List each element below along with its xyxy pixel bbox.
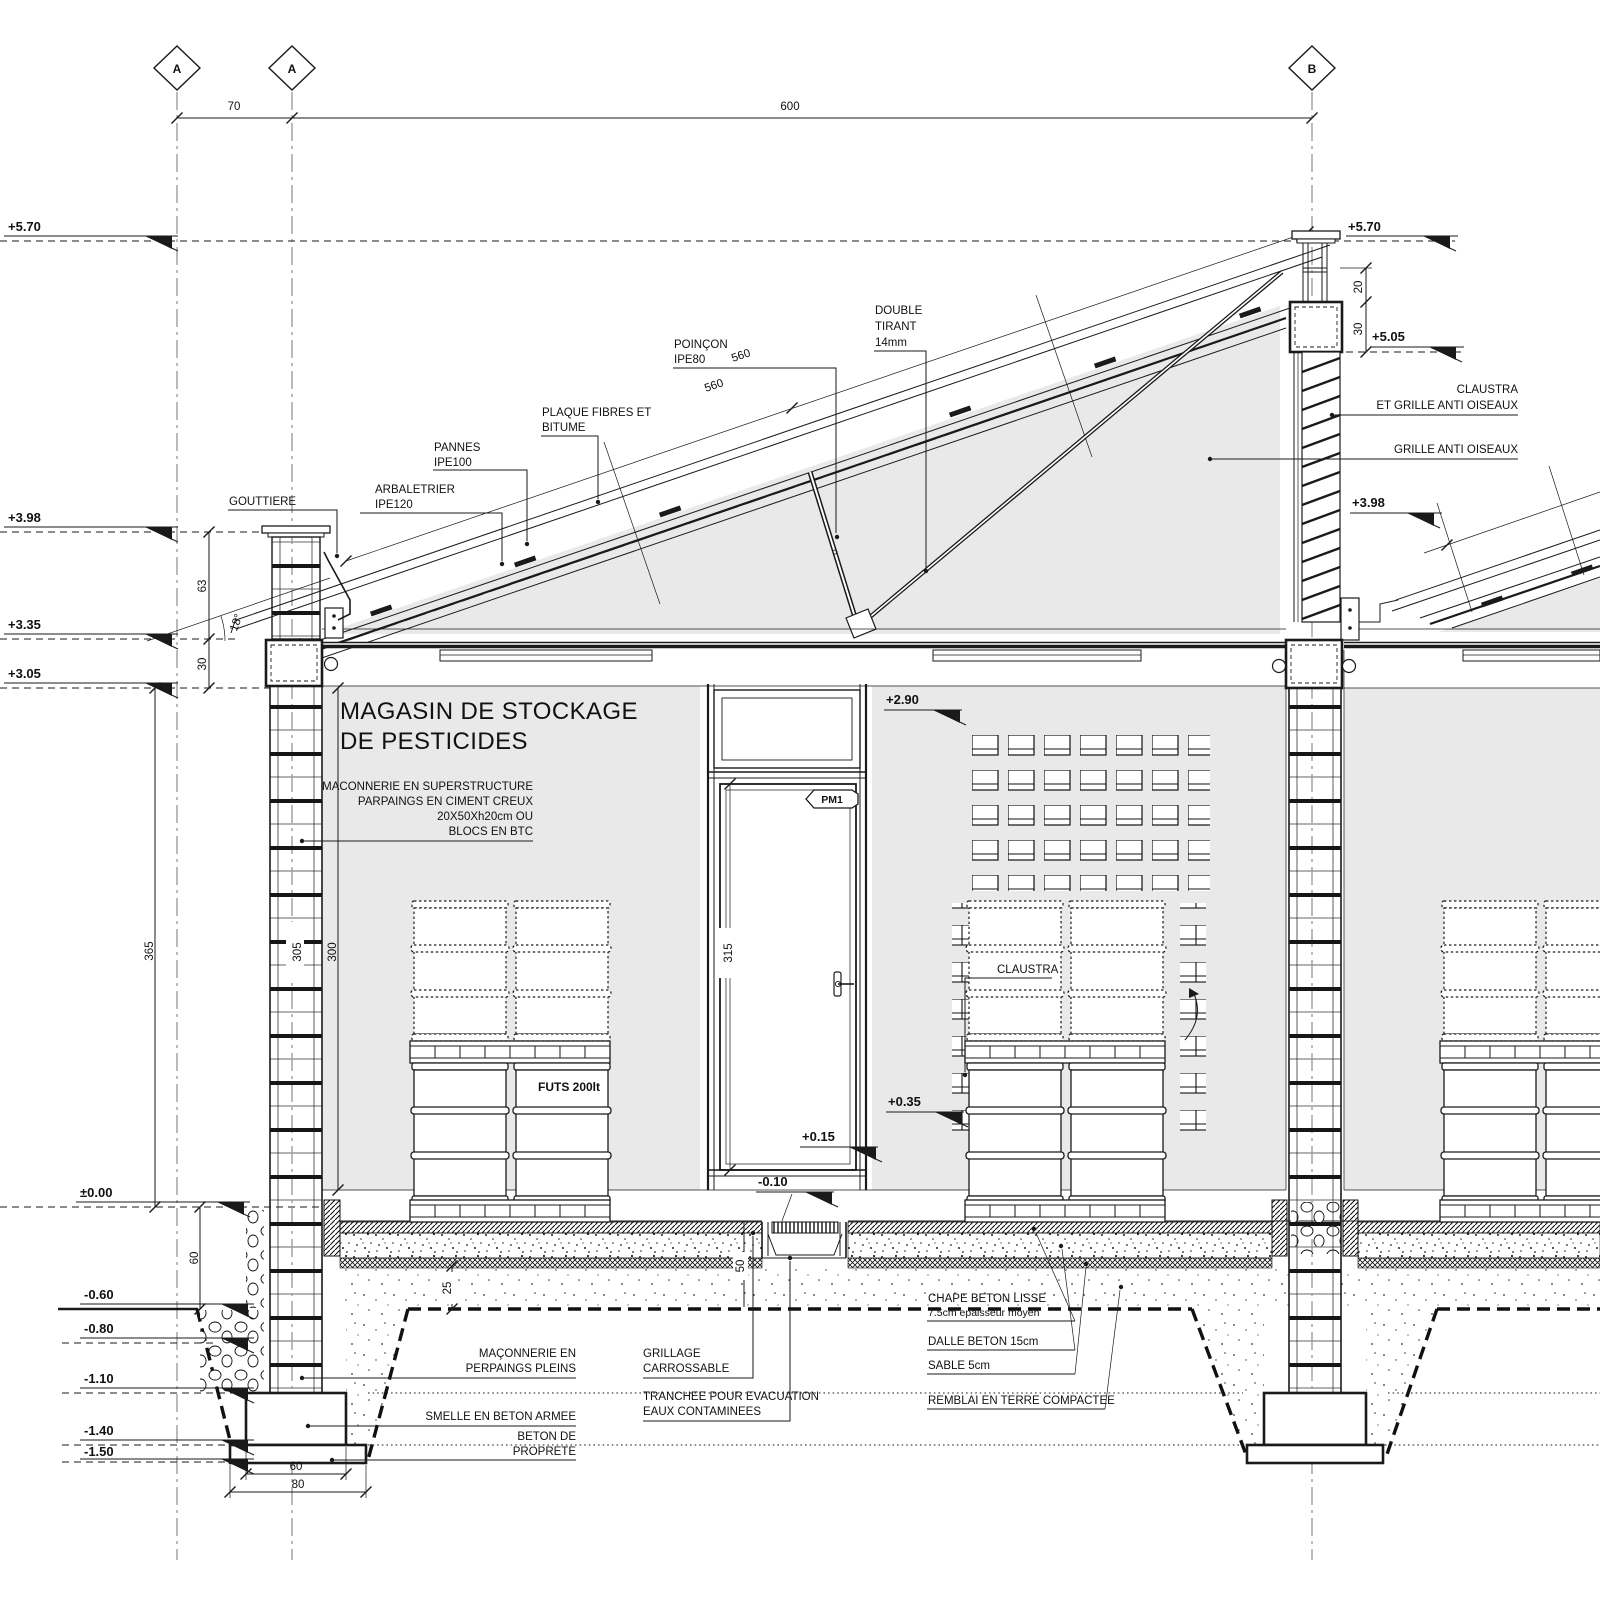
- remblai-layer: [340, 1268, 1289, 1308]
- label-claustra-grille-2: ET GRILLE ANTI OISEAUX: [1376, 400, 1518, 412]
- claustra-band-b: [1302, 352, 1340, 622]
- label-tranchee-1: TRANCHEE POUR EVACUATION: [643, 1391, 819, 1403]
- dim-60-vert: 60: [189, 1252, 201, 1265]
- label-tirant-1: DOUBLE: [875, 305, 923, 317]
- level-398-right: +3.98: [1352, 495, 1385, 510]
- dim-600: 600: [780, 101, 799, 113]
- level-305: +3.05: [8, 666, 41, 681]
- label-smelle: SMELLE EN BETON ARMEE: [425, 1411, 576, 1423]
- ceiling-rail-3: [1463, 650, 1600, 661]
- level-290: +2.90: [886, 692, 919, 707]
- ring-beam-b-top: [1290, 302, 1342, 352]
- label-arbaletrier-2: IPE120: [375, 499, 413, 511]
- truss-plate-left: [325, 608, 343, 638]
- label-grillage-1: GRILLAGE: [643, 1348, 701, 1360]
- floor-layers: [197, 1200, 1600, 1460]
- gutter-cap-plate: [262, 526, 330, 533]
- dim-50: 50: [735, 1260, 747, 1273]
- label-claustra-interior: CLAUSTRA: [997, 964, 1059, 976]
- note-maconnerie-4: BLOCS EN BTC: [449, 826, 533, 838]
- level-015: +0.15: [802, 1129, 835, 1144]
- level-m080: -0.80: [84, 1321, 114, 1336]
- level-m010: -0.10: [758, 1174, 788, 1189]
- level-505: +5.05: [1372, 329, 1405, 344]
- dim-25: 25: [442, 1282, 454, 1295]
- grid-label-a1: A: [173, 62, 182, 76]
- label-tirant-3: 14mm: [875, 337, 907, 349]
- label-grillage-2: CARROSSABLE: [643, 1363, 730, 1375]
- room-title-line2: DE PESTICIDES: [340, 728, 528, 755]
- label-proprete-2: PROPRETE: [513, 1446, 577, 1458]
- level-570-right: +5.70: [1348, 219, 1381, 234]
- dim-70: 70: [228, 101, 241, 113]
- floor-edge-beam-b-left: [1272, 1200, 1287, 1256]
- rubble-fill: [200, 1310, 264, 1392]
- label-pm1: PM1: [821, 794, 843, 806]
- level-035: +0.35: [888, 1094, 921, 1109]
- level-000: ±0.00: [80, 1185, 112, 1200]
- room-title-line1: MAGASIN DE STOCKAGE: [340, 698, 638, 725]
- label-chape-2: 7.5cm epaisseur moyen: [928, 1307, 1040, 1319]
- dim-angle-18: 18°: [228, 613, 245, 633]
- grid-label-b: B: [1308, 62, 1317, 76]
- label-arbaletrier-1: ARBALETRIER: [375, 484, 455, 496]
- level-398: +3.98: [8, 510, 41, 525]
- note-maconnerie-1: MACONNERIE EN SUPERSTRUCTURE: [322, 781, 533, 793]
- note-maconnerie-3: 20X50Xh20cm OU: [437, 811, 533, 823]
- level-m140: -1.40: [84, 1423, 114, 1438]
- levels-left: +5.70 +3.98 +3.35 +3.05 ±0.00 -0.60 -0.8…: [4, 219, 254, 1474]
- drawing-canvas: A A B 70 600 560: [0, 0, 1600, 1599]
- label-gouttiere: GOUTTIERE: [229, 496, 296, 508]
- drums-right-group: [1440, 901, 1600, 1222]
- label-perpaings-1: MAÇONNERIE EN: [479, 1348, 576, 1360]
- label-poincon-2: IPE80: [674, 354, 705, 366]
- label-dalle: DALLE BETON 15cm: [928, 1336, 1038, 1348]
- level-335: +3.35: [8, 617, 41, 632]
- level-m150: -1.50: [84, 1444, 114, 1459]
- claustra-grid: [968, 725, 1210, 891]
- floor-edge-beam-b-right: [1343, 1200, 1358, 1256]
- claustra-side-right: [1180, 903, 1206, 1133]
- label-poincon-1: POINÇON: [674, 339, 728, 351]
- level-m060: -0.60: [84, 1287, 114, 1302]
- label-plaque-1: PLAQUE FIBRES ET: [542, 407, 651, 419]
- rubble-strip: [246, 1210, 264, 1308]
- note-maconnerie-2: PARPAINGS EN CIMENT CREUX: [358, 796, 533, 808]
- trench-grate: [772, 1222, 838, 1233]
- gutter-column: [272, 537, 320, 639]
- grid-label-a2: A: [288, 62, 297, 76]
- dim-300: 300: [327, 942, 339, 961]
- ring-beam-left: [266, 640, 322, 686]
- footing-b: [1264, 1393, 1366, 1445]
- trench: [762, 1222, 846, 1258]
- dim-305: 305: [292, 942, 304, 961]
- label-plaque-2: BITUME: [542, 422, 586, 434]
- floor-edge-beam-left: [324, 1200, 340, 1256]
- footing-left: [246, 1393, 346, 1445]
- chape-layer: [340, 1222, 762, 1233]
- dim-20-right: 20: [1353, 281, 1365, 294]
- label-chape-1: CHAPE BETON LISSE: [928, 1293, 1046, 1305]
- dim-80-footing: 80: [292, 1479, 305, 1491]
- dim-60-footing: 60: [290, 1461, 303, 1473]
- dim-63: 63: [197, 580, 209, 593]
- label-pannes-1: PANNES: [434, 442, 481, 454]
- truss-plate-bay2: [1341, 598, 1359, 640]
- level-m110: -1.10: [84, 1371, 114, 1386]
- label-claustra-grille-1: CLAUSTRA: [1457, 384, 1519, 396]
- ring-beam-b: [1286, 640, 1342, 688]
- dim-30-left: 30: [197, 658, 209, 671]
- blinding-b: [1247, 1445, 1383, 1463]
- label-grille: GRILLE ANTI OISEAUX: [1394, 444, 1518, 456]
- label-tirant-2: TIRANT: [875, 321, 917, 333]
- dim-560-lower: 560: [703, 377, 725, 395]
- level-570: +5.70: [8, 219, 41, 234]
- label-perpaings-2: PERPAINGS PLEINS: [466, 1363, 577, 1375]
- label-tranchee-2: EAUX CONTAMINEES: [643, 1406, 761, 1418]
- dalle-layer: [340, 1233, 762, 1258]
- label-sable: SABLE 5cm: [928, 1360, 990, 1372]
- post-cap-b: [1292, 231, 1340, 239]
- ceiling-rail-2: [933, 650, 1141, 661]
- door-pm1: PM1 315: [708, 684, 866, 1190]
- architectural-section-drawing: A A B 70 600 560: [0, 0, 1600, 1599]
- dim-560-upper: 560: [730, 347, 752, 365]
- label-pannes-2: IPE100: [434, 457, 472, 469]
- dim-315: 315: [723, 943, 735, 962]
- dim-30-right: 30: [1353, 323, 1365, 336]
- dim-365: 365: [144, 941, 156, 960]
- ceiling-rail-1: [440, 650, 652, 661]
- sable-layer: [340, 1258, 762, 1268]
- label-remblai: REMBLAI EN TERRE COMPACTEE: [928, 1395, 1115, 1407]
- label-futs: FUTS 200lt: [538, 1080, 600, 1094]
- label-proprete-1: BETON DE: [517, 1431, 576, 1443]
